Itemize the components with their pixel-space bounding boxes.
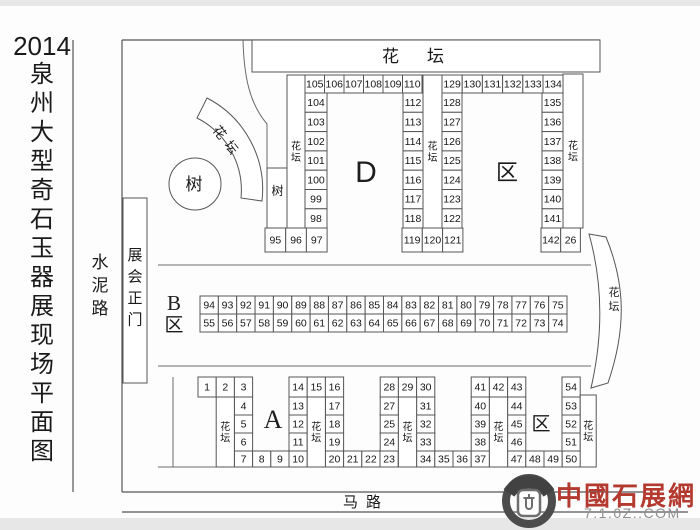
booth-104: 104: [305, 93, 327, 112]
booth-8: 8: [253, 451, 271, 467]
booth-5: 5: [234, 415, 252, 433]
svg-text:66: 66: [405, 318, 417, 330]
area-d-qu-label: 区: [496, 160, 518, 185]
svg-text:128: 128: [443, 97, 461, 109]
booth-118: 118: [403, 209, 423, 228]
flowerbed-strip-label: 花坛: [494, 420, 504, 445]
svg-text:30: 30: [420, 382, 432, 394]
booth-75: 75: [549, 296, 567, 314]
booth-112: 112: [403, 93, 423, 112]
booth-142: 142: [541, 228, 561, 252]
svg-text:37: 37: [474, 454, 486, 466]
svg-text:33: 33: [420, 437, 432, 449]
booth-57: 57: [237, 314, 255, 332]
booth-119: 119: [402, 228, 422, 252]
svg-text:105: 105: [306, 79, 324, 91]
booth-31: 31: [417, 397, 435, 415]
svg-text:29: 29: [402, 382, 414, 394]
booth-135: 135: [542, 93, 563, 112]
svg-text:129: 129: [443, 79, 461, 91]
booth-70: 70: [475, 314, 493, 332]
booth-105: 105: [305, 75, 325, 93]
booth-groups: 1051061071081091101041031021011009998112…: [198, 74, 596, 467]
booth-34: 34: [417, 451, 435, 467]
svg-text:64: 64: [368, 318, 380, 330]
booth-88: 88: [310, 296, 328, 314]
booth-39: 39: [471, 415, 489, 433]
flowerbed-strip-label: 花坛: [311, 420, 321, 445]
svg-text:104: 104: [307, 97, 325, 109]
booth-84: 84: [384, 296, 402, 314]
booth-95: 95: [265, 228, 286, 252]
svg-text:9: 9: [277, 454, 283, 466]
booth-99: 99: [305, 190, 327, 209]
svg-text:42: 42: [493, 382, 505, 394]
svg-text:137: 137: [544, 136, 562, 148]
title-year: 2014: [13, 31, 71, 61]
svg-text:14: 14: [292, 382, 304, 394]
svg-text:108: 108: [364, 79, 382, 91]
booth-93: 93: [218, 296, 236, 314]
svg-text:46: 46: [511, 437, 523, 449]
booth-78: 78: [494, 296, 512, 314]
svg-text:20: 20: [329, 454, 341, 466]
area-c-qu-label: 区: [531, 414, 550, 435]
svg-text:86: 86: [350, 300, 362, 312]
svg-text:7: 7: [241, 454, 247, 466]
svg-text:136: 136: [544, 116, 562, 128]
booth-1: 1: [198, 377, 216, 397]
svg-text:23: 23: [383, 454, 395, 466]
svg-text:50: 50: [565, 454, 577, 466]
booth-113: 113: [403, 112, 423, 131]
booth-140: 140: [542, 190, 563, 209]
booth-16: 16: [325, 377, 343, 397]
svg-text:135: 135: [544, 97, 562, 109]
title-text: 泉州大型奇石玉器展现场平面图: [30, 61, 54, 465]
booth-60: 60: [292, 314, 310, 332]
svg-text:10: 10: [292, 454, 304, 466]
booth-56: 56: [218, 314, 236, 332]
svg-text:103: 103: [307, 116, 325, 128]
svg-text:41: 41: [474, 382, 486, 394]
booth-65: 65: [384, 314, 402, 332]
svg-text:123: 123: [443, 194, 461, 206]
booth-21: 21: [344, 451, 362, 467]
booth-108: 108: [364, 75, 384, 93]
flowerbed-strip-label: 花坛: [583, 419, 593, 444]
booth-85: 85: [365, 296, 383, 314]
svg-text:12: 12: [292, 419, 304, 431]
svg-text:36: 36: [456, 454, 468, 466]
svg-text:49: 49: [547, 454, 559, 466]
booth-103: 103: [305, 112, 327, 131]
svg-text:31: 31: [420, 401, 432, 413]
svg-text:77: 77: [515, 300, 527, 312]
booth-29: 29: [398, 377, 416, 397]
booth-20: 20: [325, 451, 343, 467]
booth-80: 80: [457, 296, 475, 314]
flowerbed-bar-label: 花坛: [382, 47, 472, 66]
svg-text:61: 61: [313, 318, 325, 330]
svg-text:74: 74: [552, 318, 564, 330]
booth-9: 9: [271, 451, 289, 467]
booth-77: 77: [512, 296, 530, 314]
booth-50: 50: [562, 451, 580, 467]
svg-text:121: 121: [444, 235, 462, 247]
svg-text:5: 5: [241, 419, 247, 431]
svg-text:6: 6: [241, 437, 247, 449]
booth-63: 63: [347, 314, 365, 332]
booth-7: 7: [234, 451, 252, 467]
booth-32: 32: [417, 415, 435, 433]
svg-text:131: 131: [484, 79, 502, 91]
area-d-label: D: [355, 156, 377, 189]
svg-text:115: 115: [405, 155, 422, 167]
booth-83: 83: [402, 296, 420, 314]
svg-text:126: 126: [443, 136, 461, 148]
svg-text:26: 26: [565, 235, 577, 247]
booth-90: 90: [273, 296, 291, 314]
booth-116: 116: [403, 170, 423, 189]
svg-text:62: 62: [332, 318, 344, 330]
booth-44: 44: [508, 397, 526, 415]
svg-text:40: 40: [474, 401, 486, 413]
booth-45: 45: [508, 415, 526, 433]
booth-126: 126: [442, 132, 462, 151]
booth-86: 86: [347, 296, 365, 314]
booth-54: 54: [562, 377, 580, 397]
booth-74: 74: [549, 314, 567, 332]
booth-123: 123: [442, 190, 462, 209]
svg-text:43: 43: [511, 382, 523, 394]
booth-41: 41: [471, 377, 489, 397]
booth-98: 98: [305, 209, 327, 228]
svg-text:71: 71: [497, 318, 509, 330]
booth-66: 66: [402, 314, 420, 332]
booth-19: 19: [325, 433, 343, 451]
booth-72: 72: [512, 314, 530, 332]
booth-25: 25: [380, 415, 398, 433]
svg-text:53: 53: [565, 401, 577, 413]
booth-101: 101: [305, 151, 327, 170]
svg-text:91: 91: [258, 300, 270, 312]
svg-text:75: 75: [552, 300, 564, 312]
svg-text:82: 82: [424, 300, 436, 312]
booth-100: 100: [305, 170, 327, 189]
booth-107: 107: [344, 75, 364, 93]
svg-text:92: 92: [240, 300, 252, 312]
svg-text:70: 70: [479, 318, 491, 330]
svg-text:8: 8: [259, 454, 265, 466]
booth-136: 136: [542, 112, 563, 131]
svg-text:84: 84: [387, 300, 399, 312]
svg-text:120: 120: [424, 235, 442, 247]
booth-79: 79: [475, 296, 493, 314]
flowerbed-strip-8: 花坛: [580, 395, 596, 467]
svg-text:54: 54: [565, 382, 577, 394]
svg-text:125: 125: [443, 155, 461, 167]
svg-text:93: 93: [222, 300, 234, 312]
svg-text:139: 139: [544, 174, 562, 186]
svg-text:116: 116: [405, 174, 422, 186]
svg-text:94: 94: [203, 300, 215, 312]
svg-text:18: 18: [329, 419, 341, 431]
booth-43: 43: [508, 377, 526, 397]
svg-text:44: 44: [511, 401, 523, 413]
booth-71: 71: [494, 314, 512, 332]
svg-text:59: 59: [277, 318, 289, 330]
svg-text:122: 122: [443, 213, 461, 225]
booth-2: 2: [216, 377, 234, 397]
booth-26: 26: [561, 228, 581, 252]
svg-text:51: 51: [565, 437, 577, 449]
svg-text:107: 107: [345, 79, 363, 91]
booth-47: 47: [508, 451, 526, 467]
booth-15: 15: [307, 377, 325, 397]
svg-text:95: 95: [270, 235, 282, 247]
svg-text:83: 83: [405, 300, 417, 312]
booth-68: 68: [439, 314, 457, 332]
svg-text:110: 110: [404, 79, 421, 91]
svg-text:89: 89: [295, 300, 307, 312]
svg-text:45: 45: [511, 419, 523, 431]
svg-text:68: 68: [442, 318, 454, 330]
svg-text:127: 127: [443, 116, 461, 128]
svg-text:133: 133: [524, 79, 542, 91]
svg-text:57: 57: [240, 318, 252, 330]
watermark-logo: [506, 478, 552, 524]
svg-text:78: 78: [497, 300, 509, 312]
flowerbed-strip-label: 花坛: [291, 140, 301, 165]
svg-text:35: 35: [438, 454, 450, 466]
svg-text:142: 142: [542, 235, 560, 247]
svg-text:114: 114: [405, 136, 422, 148]
booth-76: 76: [530, 296, 548, 314]
booth-96: 96: [286, 228, 307, 252]
flowerbed-strip-4: 花坛: [216, 397, 234, 467]
svg-text:72: 72: [515, 318, 527, 330]
svg-text:106: 106: [325, 79, 343, 91]
area-b-qu-label: 区: [164, 315, 183, 336]
svg-text:3: 3: [241, 382, 247, 394]
svg-text:25: 25: [383, 419, 395, 431]
booth-6: 6: [234, 433, 252, 451]
booth-137: 137: [542, 132, 563, 151]
flowerbed-strip-2: 花坛: [423, 75, 442, 228]
booth-28: 28: [380, 377, 398, 397]
booth-52: 52: [562, 415, 580, 433]
flowerbed-strip-label: 花坛: [403, 420, 413, 445]
svg-text:124: 124: [443, 174, 461, 186]
booth-87: 87: [328, 296, 346, 314]
flowerbed-strip-label: 花坛: [568, 139, 578, 164]
booth-51: 51: [562, 433, 580, 451]
booth-37: 37: [471, 451, 489, 467]
svg-text:21: 21: [347, 454, 359, 466]
svg-text:101: 101: [307, 155, 325, 167]
svg-text:140: 140: [544, 194, 562, 206]
svg-text:32: 32: [420, 419, 432, 431]
booth-17: 17: [325, 397, 343, 415]
booth-139: 139: [542, 170, 563, 189]
booth-27: 27: [380, 397, 398, 415]
svg-text:69: 69: [460, 318, 472, 330]
svg-text:63: 63: [350, 318, 362, 330]
svg-text:99: 99: [310, 194, 322, 206]
svg-text:132: 132: [504, 79, 522, 91]
tree-booth-box: [267, 168, 288, 230]
svg-text:60: 60: [295, 318, 307, 330]
booth-138: 138: [542, 151, 563, 170]
svg-text:67: 67: [424, 318, 436, 330]
svg-text:4: 4: [241, 401, 247, 413]
booth-89: 89: [292, 296, 310, 314]
booth-53: 53: [562, 397, 580, 415]
flowerbed-strip-label: 花坛: [428, 140, 438, 165]
booth-128: 128: [442, 93, 462, 112]
svg-text:119: 119: [404, 235, 421, 247]
site-plan-svg: 2014 泉州大型奇石玉器展现场平面图 水泥路 马路 展会正门 花坛 树 花坛 …: [0, 0, 700, 530]
booth-73: 73: [530, 314, 548, 332]
booth-110: 110: [403, 75, 423, 93]
booth-124: 124: [442, 170, 462, 189]
booth-13: 13: [289, 397, 307, 415]
booth-121: 121: [443, 228, 463, 252]
flowerbed-strip-5: 花坛: [307, 397, 325, 467]
svg-text:87: 87: [332, 300, 344, 312]
area-b-label: B: [167, 291, 181, 315]
svg-text:22: 22: [365, 454, 377, 466]
booth-134: 134: [543, 75, 563, 93]
booth-131: 131: [482, 75, 502, 93]
svg-text:100: 100: [307, 174, 325, 186]
booth-114: 114: [403, 132, 423, 151]
booth-82: 82: [420, 296, 438, 314]
booth-122: 122: [442, 209, 462, 228]
svg-text:13: 13: [292, 401, 304, 413]
svg-text:16: 16: [329, 382, 341, 394]
booth-115: 115: [403, 151, 423, 170]
booth-133: 133: [523, 75, 543, 93]
svg-text:34: 34: [420, 454, 432, 466]
svg-text:65: 65: [387, 318, 399, 330]
booth-64: 64: [365, 314, 383, 332]
booth-36: 36: [453, 451, 471, 467]
svg-text:2: 2: [222, 382, 228, 394]
flowerbed-strip-6: 花坛: [398, 397, 416, 467]
svg-text:39: 39: [474, 419, 486, 431]
svg-text:27: 27: [383, 401, 395, 413]
booth-109: 109: [383, 75, 403, 93]
svg-text:73: 73: [534, 318, 546, 330]
booth-40: 40: [471, 397, 489, 415]
tree-booth-label: 树: [271, 183, 283, 198]
booth-12: 12: [289, 415, 307, 433]
svg-text:79: 79: [479, 300, 491, 312]
svg-text:96: 96: [290, 235, 302, 247]
svg-text:80: 80: [460, 300, 472, 312]
booth-33: 33: [417, 433, 435, 451]
booth-35: 35: [435, 451, 453, 467]
svg-text:113: 113: [405, 116, 422, 128]
booth-117: 117: [403, 190, 423, 209]
svg-text:134: 134: [544, 79, 562, 91]
svg-text:52: 52: [565, 419, 577, 431]
booth-42: 42: [489, 377, 507, 397]
booth-23: 23: [380, 451, 398, 467]
booth-92: 92: [237, 296, 255, 314]
svg-text:56: 56: [222, 318, 234, 330]
booth-11: 11: [289, 433, 307, 451]
booth-38: 38: [471, 433, 489, 451]
booth-55: 55: [200, 314, 218, 332]
flowerbed-strip-7: 花坛: [489, 397, 507, 467]
booth-49: 49: [544, 451, 562, 467]
svg-text:24: 24: [383, 437, 395, 449]
svg-text:138: 138: [544, 155, 562, 167]
scan-edge-top: [0, 0, 700, 6]
booth-106: 106: [325, 75, 345, 93]
booth-69: 69: [457, 314, 475, 332]
booth-127: 127: [442, 112, 462, 131]
svg-text:11: 11: [293, 437, 304, 449]
svg-text:19: 19: [329, 437, 341, 449]
booth-132: 132: [503, 75, 523, 93]
booth-67: 67: [420, 314, 438, 332]
svg-text:55: 55: [203, 318, 215, 330]
svg-text:117: 117: [405, 194, 422, 206]
svg-text:17: 17: [329, 401, 341, 413]
area-a-label: A: [264, 405, 283, 434]
floor-plan-page: 2014 泉州大型奇石玉器展现场平面图 水泥路 马路 展会正门 花坛 树 花坛 …: [0, 0, 700, 530]
svg-text:58: 58: [258, 318, 270, 330]
svg-text:97: 97: [311, 235, 323, 247]
flowerbed-strip-1: 花坛: [287, 75, 305, 228]
left-road-label: 水泥路: [92, 253, 109, 318]
booth-58: 58: [255, 314, 273, 332]
booth-102: 102: [305, 132, 327, 151]
booth-81: 81: [439, 296, 457, 314]
booth-125: 125: [442, 151, 462, 170]
svg-text:28: 28: [383, 382, 395, 394]
svg-text:141: 141: [544, 213, 562, 225]
booth-120: 120: [422, 228, 442, 252]
svg-text:81: 81: [442, 300, 454, 312]
booth-48: 48: [526, 451, 544, 467]
svg-text:118: 118: [405, 213, 422, 225]
svg-text:130: 130: [464, 79, 482, 91]
booth-62: 62: [328, 314, 346, 332]
svg-text:98: 98: [310, 213, 322, 225]
flowerbed-strip-3: 花坛: [563, 74, 583, 228]
booth-129: 129: [442, 75, 462, 93]
flowerbed-strip-label: 花坛: [220, 420, 230, 445]
svg-text:15: 15: [310, 382, 322, 394]
svg-text:48: 48: [529, 454, 541, 466]
svg-text:85: 85: [368, 300, 380, 312]
booth-24: 24: [380, 433, 398, 451]
booth-141: 141: [542, 209, 563, 228]
svg-text:47: 47: [511, 454, 523, 466]
svg-text:88: 88: [313, 300, 325, 312]
booth-4: 4: [234, 397, 252, 415]
svg-text:76: 76: [534, 300, 546, 312]
booth-94: 94: [200, 296, 218, 314]
svg-text:90: 90: [277, 300, 289, 312]
svg-text:102: 102: [307, 136, 325, 148]
booth-61: 61: [310, 314, 328, 332]
